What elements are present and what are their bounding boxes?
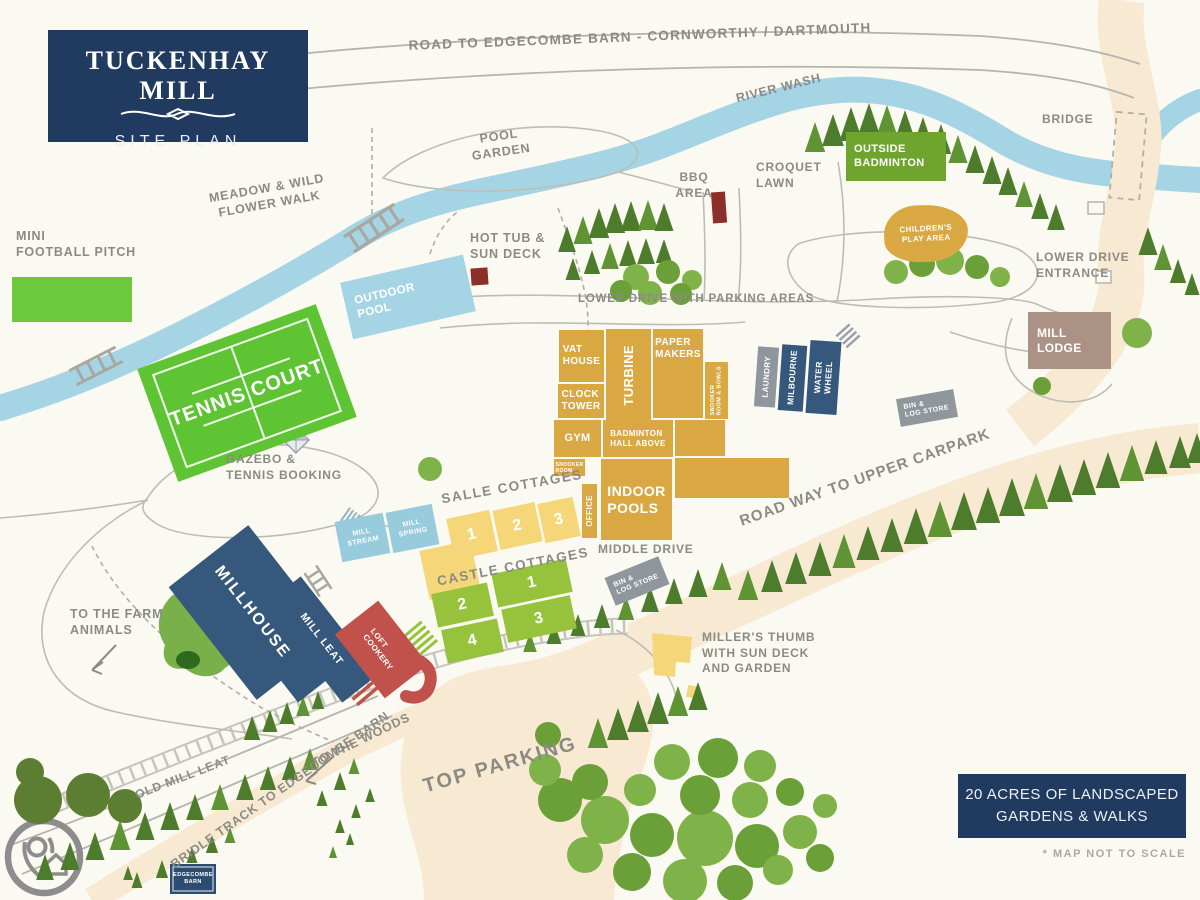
- conifer-tree: [329, 846, 337, 858]
- water-wheel-label: WATER WHEEL: [812, 360, 835, 394]
- conifer-tree: [351, 804, 361, 818]
- bush-tree: [990, 267, 1010, 287]
- farm-arrow: [92, 645, 116, 674]
- bush-tree: [806, 844, 834, 872]
- conifer-tree: [346, 833, 354, 845]
- conifer-tree: [573, 216, 592, 244]
- conifer-tree: [621, 201, 641, 231]
- paper-makers: PAPER MAKERS: [653, 329, 703, 418]
- conifer-tree: [335, 819, 345, 833]
- bin-log-store-label: BIN & LOG STORE: [903, 396, 950, 420]
- vat-house: VAT HOUSE: [559, 330, 604, 382]
- bush-tree: [1122, 318, 1152, 348]
- bush-tree: [677, 810, 733, 866]
- conifer-tree: [601, 243, 619, 269]
- site-title: TUCKENHAY MILL: [48, 46, 308, 106]
- badminton-hall: BADMINTON HALL ABOVE: [603, 420, 673, 457]
- conifer-tree: [1170, 259, 1186, 283]
- clock-tower: CLOCK TOWER: [558, 384, 604, 418]
- childrens-play-label: CHILDREN'S PLAY AREA: [899, 223, 953, 245]
- label-mini-football: MINI FOOTBALL PITCH: [16, 228, 136, 261]
- bush-tree: [572, 764, 608, 800]
- office: OFFICE: [582, 484, 597, 538]
- conifer-tree: [965, 145, 984, 173]
- conifer-tree: [998, 167, 1017, 195]
- mill-stream-label: MILL STREAM: [345, 526, 380, 549]
- bush-tree: [624, 774, 656, 806]
- castle-cottage-number: 1: [525, 573, 538, 594]
- label-croquet-lawn: CROQUET LAWN: [756, 160, 822, 191]
- conifer-tree: [654, 203, 673, 231]
- conifer-tree: [334, 772, 346, 790]
- site-plan-map: ROAD TO EDGECOMBE BARN - CORNWORTHY / DA…: [0, 0, 1200, 900]
- outdoor-pool-label: OUTDOOR POOL: [353, 282, 419, 323]
- conifer-tree: [236, 774, 254, 800]
- turbine-label: TURBINE: [621, 345, 637, 406]
- bush-tree: [965, 255, 989, 279]
- mini-football-pitch: [12, 277, 132, 322]
- conifer-tree: [805, 122, 825, 152]
- edgecombe-barn-label: EDGECOMBE BARN: [173, 872, 213, 885]
- conifer-tree: [1185, 273, 1200, 295]
- bush-tree: [698, 738, 738, 778]
- conifer-tree: [1154, 244, 1172, 270]
- logo-flourish-icon: [113, 106, 243, 122]
- conifer-tree: [688, 569, 707, 597]
- mill-lodge: MILL LODGE: [1028, 312, 1111, 369]
- bush-tree: [16, 758, 44, 786]
- mill-lodge-label: MILL LODGE: [1037, 326, 1082, 355]
- conifer-tree: [594, 604, 610, 628]
- gym: GYM: [554, 420, 601, 457]
- label-bbq-area: BBQ AREA: [664, 170, 724, 201]
- conifer-tree: [638, 200, 658, 230]
- label-middle-drive: MIDDLE DRIVE: [598, 542, 694, 558]
- vat-house-label: VAT HOUSE: [563, 344, 601, 368]
- bush-tree: [567, 837, 603, 873]
- mill-spring-label: MILL SPRING: [397, 517, 429, 539]
- milbourne: MILBOURNE: [778, 344, 808, 412]
- bush-tree: [1033, 377, 1051, 395]
- bush-tree: [613, 853, 651, 891]
- outside-badminton-court: OUTSIDE BADMINTON: [846, 132, 946, 181]
- conifer-tree: [619, 240, 637, 266]
- map-scale-note: * MAP NOT TO SCALE: [986, 848, 1186, 860]
- bush-tree: [654, 744, 690, 780]
- conifer-tree: [822, 114, 844, 146]
- conifer-tree: [1015, 181, 1033, 207]
- turbine: TURBINE: [606, 329, 651, 421]
- label-lower-drive-parking: LOWER DRIVE WITH PARKING AREAS: [578, 292, 814, 307]
- bush-tree: [66, 773, 110, 817]
- acreage-banner: 20 ACRES OF LANDSCAPED GARDENS & WALKS: [958, 774, 1186, 838]
- conifer-tree: [712, 562, 731, 590]
- indoor-pools-label: INDOOR POOLS: [607, 483, 665, 517]
- bush-tree: [717, 865, 753, 900]
- bush-tree: [656, 260, 680, 284]
- bush-tree: [783, 815, 817, 849]
- bush-tree: [581, 796, 629, 844]
- bush-tree: [630, 813, 674, 857]
- laundry-label: LAUNDRY: [760, 356, 772, 398]
- salle-cottage-number: 2: [511, 516, 524, 537]
- acreage-banner-text: 20 ACRES OF LANDSCAPED GARDENS & WALKS: [965, 784, 1179, 828]
- site-plan-title-card: TUCKENHAY MILL SITE PLAN: [48, 30, 308, 142]
- indoor-pools: INDOOR POOLS: [601, 459, 672, 540]
- label-bridge: BRIDGE: [1042, 112, 1093, 128]
- mill-block-southeast: [675, 458, 789, 498]
- conifer-tree: [1047, 204, 1065, 230]
- label-hot-tub: HOT TUB & SUN DECK: [470, 230, 545, 263]
- laundry: LAUNDRY: [754, 346, 779, 407]
- conifer-tree: [982, 156, 1001, 184]
- snooker-room-bowls-label: SNOOKER ROOM & BOWLS: [710, 366, 723, 415]
- office-label: OFFICE: [585, 495, 595, 527]
- castle-cottage-number: 4: [466, 631, 479, 652]
- bush-tree: [776, 778, 804, 806]
- conifer-tree: [668, 686, 688, 716]
- site-subtitle: SITE PLAN: [48, 133, 308, 151]
- salle-cottage-number: 3: [552, 510, 565, 531]
- conifer-tree: [1031, 193, 1049, 219]
- bush-tree: [732, 782, 768, 818]
- conifer-tree: [365, 788, 375, 802]
- mill-block-east: [675, 420, 725, 456]
- hot-tub-deck: [470, 267, 488, 285]
- milbourne-label: MILBOURNE: [785, 350, 799, 406]
- cookery-loft-label: COOKERY LOFT: [361, 627, 403, 673]
- bush-tree: [813, 794, 837, 818]
- label-millers-thumb: MILLER'S THUMB WITH SUN DECK AND GARDEN: [702, 630, 815, 677]
- conifer-tree: [558, 226, 576, 252]
- castle-cottage-number: 3: [532, 609, 545, 630]
- conifer-tree: [656, 239, 672, 263]
- snooker-room-bowls: SNOOKER ROOM & BOWLS: [705, 362, 728, 419]
- label-to-farm-animals: TO THE FARM ANIMALS: [70, 606, 163, 639]
- bush-tree: [763, 855, 793, 885]
- conifer-tree: [584, 250, 600, 274]
- bush-tree: [884, 260, 908, 284]
- castle-cottage-number: 2: [456, 595, 469, 616]
- paper-makers-label: PAPER MAKERS: [655, 337, 701, 361]
- badminton-hall-label: BADMINTON HALL ABOVE: [610, 429, 666, 448]
- outside-badminton-label: OUTSIDE BADMINTON: [854, 143, 925, 169]
- label-gazebo: GAZEBO & TENNIS BOOKING: [226, 452, 342, 483]
- bush-tree: [744, 750, 776, 782]
- bush-tree: [418, 457, 442, 481]
- gym-label: GYM: [564, 432, 590, 445]
- water-wheel: WATER WHEEL: [805, 340, 841, 415]
- conifer-tree: [160, 802, 179, 830]
- conifer-tree: [948, 135, 967, 163]
- conifer-tree: [637, 238, 655, 264]
- conifer-tree: [589, 208, 609, 238]
- label-lower-drive-entrance: LOWER DRIVE ENTRANCE: [1036, 250, 1129, 281]
- bush-tree: [680, 775, 720, 815]
- conifer-tree: [317, 790, 328, 806]
- clock-tower-label: CLOCK TOWER: [561, 389, 600, 413]
